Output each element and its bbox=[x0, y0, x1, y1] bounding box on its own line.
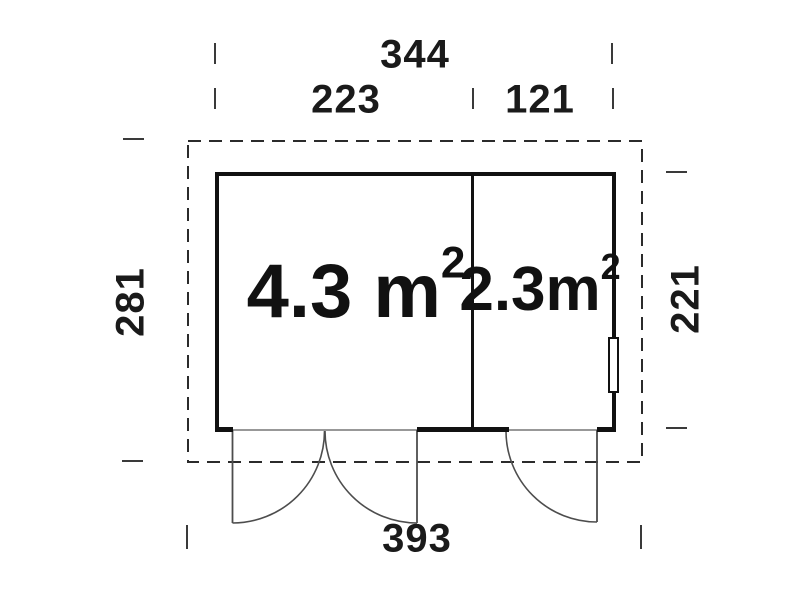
dim-base-width: 393 bbox=[382, 517, 452, 562]
right-wall-window bbox=[608, 337, 619, 393]
double-door-right-swing-arc bbox=[325, 431, 417, 523]
bottom-wall-middle-segment bbox=[417, 427, 509, 432]
tick-overall-width-left bbox=[214, 43, 216, 64]
tick-overall-width-right bbox=[611, 43, 613, 64]
main-room-area-label: 4.3 m2 bbox=[247, 254, 466, 330]
tick-wall-depth-bottom bbox=[666, 427, 687, 429]
dim-right-section-width: 121 bbox=[505, 78, 575, 123]
dim-overall-width: 344 bbox=[380, 33, 450, 78]
side-room-area-value: 2.3m bbox=[459, 259, 600, 321]
bottom-wall-right-segment bbox=[597, 427, 616, 432]
side-room-area-label: 2.3m2 bbox=[459, 259, 620, 321]
double-door-left-swing-arc bbox=[233, 431, 325, 523]
bottom-wall-left-segment bbox=[215, 427, 233, 432]
tick-sections-left bbox=[214, 88, 216, 109]
dim-left-section-width: 223 bbox=[311, 78, 381, 123]
dim-overall-depth: 281 bbox=[109, 267, 154, 337]
tick-base-width-left bbox=[186, 525, 188, 549]
tick-wall-depth-top bbox=[666, 171, 687, 173]
main-room-area-value: 4.3 m bbox=[247, 254, 441, 330]
floor-plan-canvas: 4.3 m2 2.3m2 344 223 121 281 221 393 bbox=[0, 0, 800, 600]
tick-overall-depth-bottom bbox=[122, 460, 143, 462]
tick-sections-right bbox=[612, 88, 614, 109]
tick-base-width-right bbox=[640, 525, 642, 549]
dim-wall-depth: 221 bbox=[664, 264, 709, 334]
tick-overall-depth-top bbox=[123, 138, 144, 140]
side-room-area-superscript: 2 bbox=[601, 249, 621, 285]
single-door-swing-arc bbox=[506, 431, 597, 522]
tick-sections-middle bbox=[472, 88, 474, 109]
